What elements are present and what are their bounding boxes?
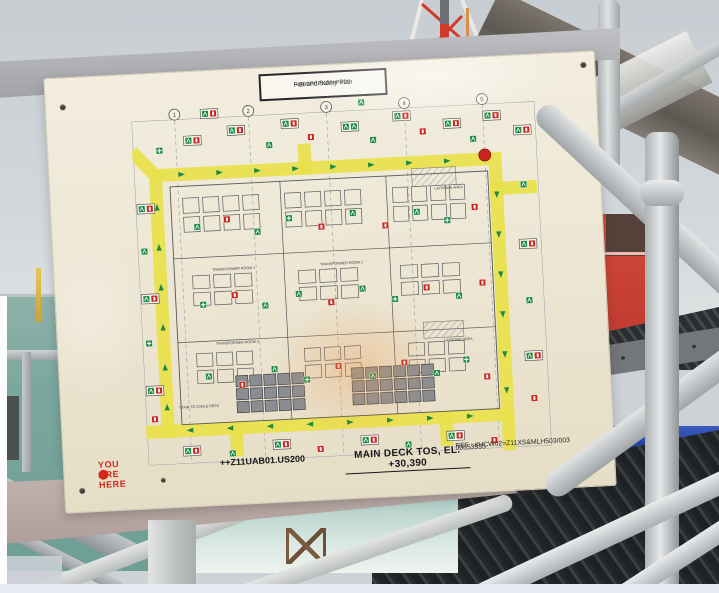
pairEF-icon xyxy=(200,108,218,118)
fire-icon xyxy=(423,284,430,291)
fire-icon xyxy=(484,373,491,380)
exit-icon xyxy=(194,223,201,230)
room-label: STAIR TO CABLE DECK xyxy=(179,404,220,410)
exit-icon xyxy=(205,373,212,380)
exit-icon xyxy=(295,290,302,297)
pairEF-icon xyxy=(525,350,543,360)
photo-edge-bottom xyxy=(0,584,719,593)
aid-icon xyxy=(304,376,311,383)
room-label: TRANSFORMER ROOM 1 xyxy=(212,266,255,272)
red-location-marker xyxy=(478,149,491,162)
plate-title: Fire and Safety Plan xyxy=(293,79,352,90)
safety-plan-board: +Z00P0PK00-PK05 Fire and Safety Plan 123… xyxy=(43,50,616,513)
fire-icon xyxy=(531,395,538,402)
pairEF-icon xyxy=(141,294,159,304)
exit-icon xyxy=(359,285,366,292)
pairEE-icon xyxy=(341,121,359,131)
room-label: LAYDOWN AREA xyxy=(434,185,463,190)
fire-icon xyxy=(231,292,238,299)
pairEF-icon xyxy=(183,135,201,145)
photo-edge-left xyxy=(0,296,7,593)
room-label: LAYDOWN AREA xyxy=(444,337,473,342)
fire-icon xyxy=(224,216,231,223)
aid-icon xyxy=(146,340,153,347)
exit-icon xyxy=(470,135,477,142)
room-label: TRANSFORMER ROOM 2 xyxy=(320,260,363,266)
pairEF-icon xyxy=(392,111,410,121)
exit-icon xyxy=(271,366,278,373)
exit-icon xyxy=(262,302,269,309)
fire-icon xyxy=(318,223,325,230)
screw xyxy=(580,62,586,68)
yellow-marker-pile xyxy=(36,268,41,322)
pairEF-icon xyxy=(273,439,291,449)
exit-icon xyxy=(229,450,236,457)
exit-icon xyxy=(349,210,356,217)
pairEF-icon xyxy=(483,110,501,120)
exit-icon xyxy=(413,208,420,215)
pairEF-icon xyxy=(519,238,537,248)
floor-plan-svg: 12345TRANSFORMER ROOM 1TRANSFORMER ROOM … xyxy=(130,88,554,468)
screw xyxy=(161,478,166,483)
exit-icon xyxy=(254,228,261,235)
exit-icon xyxy=(526,297,533,304)
fire-icon xyxy=(317,446,324,453)
plan-title-line1: MAIN DECK TOS, EL. +30,390 xyxy=(345,444,471,474)
pairEF-icon xyxy=(513,125,531,135)
aid-icon xyxy=(392,296,399,303)
pairEF-icon xyxy=(361,435,379,445)
sign-support-post xyxy=(148,520,196,593)
fire-icon xyxy=(471,203,478,210)
photo-blur-corner xyxy=(0,556,62,586)
you-are-here-label: YOU ARE HERE xyxy=(98,459,127,490)
pairEF-icon xyxy=(137,204,155,214)
fire-icon xyxy=(335,363,342,370)
stanchion-joint xyxy=(640,180,684,206)
exit-icon xyxy=(358,99,365,106)
pairEF-icon xyxy=(443,118,461,128)
upper-railing-post xyxy=(598,0,620,172)
exit-icon xyxy=(370,373,377,380)
screw xyxy=(60,104,66,110)
pairEF-icon xyxy=(183,446,201,456)
exit-icon xyxy=(456,292,463,299)
exit-icon xyxy=(141,248,148,255)
pairEF-icon xyxy=(146,386,164,396)
aid-icon xyxy=(463,356,470,363)
photo-scene: +Z00P0PK00-PK05 Fire and Safety Plan 123… xyxy=(0,0,719,593)
fire-icon xyxy=(307,134,314,141)
aid-icon xyxy=(156,147,163,154)
exit-icon xyxy=(370,136,377,143)
fire-icon xyxy=(328,299,335,306)
pairEF-icon xyxy=(281,118,299,128)
pairEF-icon xyxy=(447,430,465,440)
screw xyxy=(79,488,85,494)
aid-icon xyxy=(286,215,293,222)
fire-icon xyxy=(239,381,246,388)
aid-icon xyxy=(200,301,207,308)
pairEF-icon xyxy=(227,125,245,135)
exit-icon xyxy=(434,370,441,377)
aid-icon xyxy=(444,217,451,224)
fire-icon xyxy=(419,128,426,135)
exit-icon xyxy=(266,142,273,149)
floor-plan: 12345TRANSFORMER ROOM 1TRANSFORMER ROOM … xyxy=(130,88,554,468)
fire-icon xyxy=(401,359,408,366)
exit-icon xyxy=(520,181,527,188)
left-railing-post xyxy=(22,352,31,472)
room-label: TRANSFORMER ROOM 3 xyxy=(216,340,259,346)
fire-icon xyxy=(382,222,389,229)
fire-icon xyxy=(479,279,486,286)
fire-icon xyxy=(152,416,159,423)
